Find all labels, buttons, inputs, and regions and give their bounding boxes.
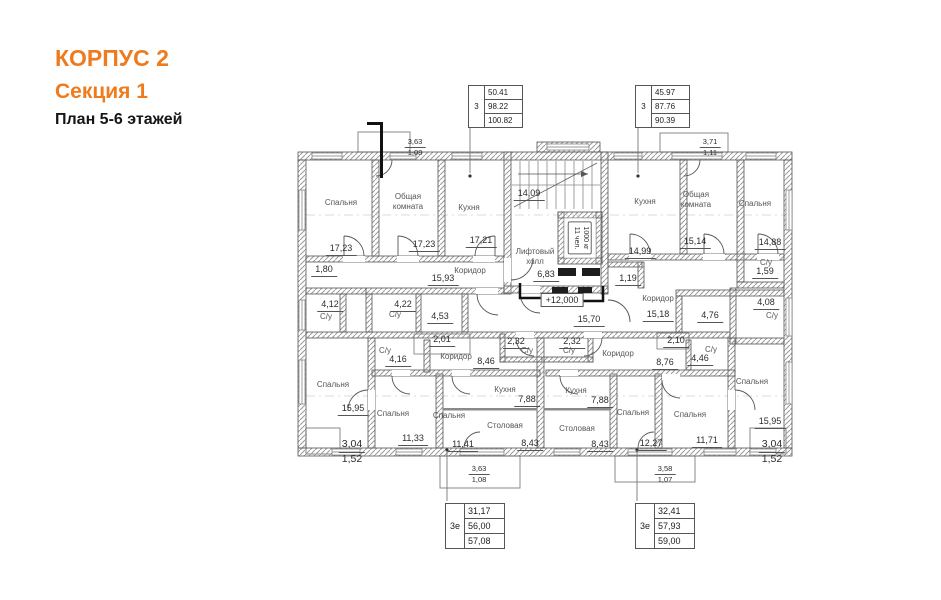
room-area-kuhnya-tl: 17,21 — [466, 236, 497, 248]
apartment-type: 3е — [446, 504, 465, 548]
level-mark: +12,000 — [541, 293, 584, 307]
room-area-koridor-846: 8,46 — [473, 357, 499, 369]
room-area-koridor-1518: 15,18 — [643, 310, 674, 322]
room-name-spalnya-bl3: Спальня — [433, 411, 465, 421]
room-name-koridor-846: Коридор — [440, 352, 472, 362]
balcony-area-bottom: 1,11 — [700, 148, 721, 158]
room-area-koridor-876: 8,76 — [652, 358, 678, 370]
room-name-koridor-1518: Коридор — [642, 294, 674, 304]
apartment-living-area: 31,17 — [465, 504, 504, 519]
room-area-stair: 14,09 — [514, 189, 545, 201]
apartment-table-bottom-right: 3е 32,41 57,93 59,00 — [635, 503, 695, 549]
room-name-spalnya-bl1: Спальня — [317, 380, 349, 390]
room-area-koridor-tl: 15,93 — [428, 274, 459, 286]
room-name-kuhnya-tr: Кухня — [634, 197, 655, 207]
room-area-obshaya-tl: 17,23 — [409, 240, 440, 252]
room-area-su-232-r: 2,32 — [559, 337, 585, 349]
room-name-stolovaya-bl: Столовая — [487, 421, 523, 431]
room-name-su-408: С/у — [766, 311, 778, 321]
apartment-table-top-right: 3 45.97 87.76 90.39 — [635, 85, 690, 128]
room-area-spalnya-tl: 17,23 — [326, 244, 357, 256]
apartment-type: 3 — [469, 86, 485, 127]
room-area-su-412: 4,12 — [317, 300, 343, 312]
balcony-area-bottom-center-left: 3,63 1,08 — [469, 464, 490, 485]
room-name-kuhnya-tl: Кухня — [458, 203, 479, 213]
room-area-kuhnya-bl: 7,88 — [514, 395, 540, 407]
room-area-453: 4,53 — [427, 312, 453, 324]
room-area-stolovaya-br: 8,43 — [587, 440, 613, 452]
apartment-area: 87.76 — [652, 100, 689, 114]
apartment-living-area: 32,41 — [655, 504, 694, 519]
balcony-area-top: 3,04 — [759, 438, 785, 453]
room-name-kuhnya-bl: Кухня — [494, 385, 515, 395]
floor-plan-page: КОРПУС 2 Секция 1 План 5-6 этажей — [0, 0, 941, 600]
room-area-spalnya-bl1: 15,95 — [338, 404, 369, 416]
room-area-su-232-l: 2,32 — [503, 337, 529, 349]
apartment-area: 57,93 — [655, 519, 694, 534]
balcony-area-bottom: 1,07 — [655, 475, 676, 485]
elevator-capacity-label: 1000 кг 11 чел. — [568, 221, 592, 254]
balcony-area-bottom-left-corner: 3,04 1,52 — [339, 438, 365, 466]
room-name-kuhnya-br: Кухня — [565, 386, 586, 396]
room-area-201: 2,01 — [429, 335, 455, 347]
stairs — [512, 161, 600, 209]
apartment-area: 98.22 — [485, 100, 522, 114]
balcony-area-bottom: 1,52 — [759, 453, 785, 467]
room-name-koridor-tl: Коридор — [454, 266, 486, 276]
apartment-living-area: 50.41 — [485, 86, 522, 100]
apartment-type: 3е — [636, 504, 655, 548]
apartment-total-area: 59,00 — [655, 534, 694, 548]
balcony-area-bottom: 1,52 — [339, 453, 365, 467]
apartment-area: 56,00 — [465, 519, 504, 534]
room-name-spalnya-tl: Спальня — [325, 198, 357, 208]
room-name-spalnya-br2: Спальня — [674, 410, 706, 420]
room-area-kuhnya-br: 7,88 — [587, 396, 613, 408]
room-name-spalnya-br1: Спальня — [617, 408, 649, 418]
room-name-koridor-876: Коридор — [602, 349, 634, 359]
room-area-su-159: 1,59 — [752, 267, 778, 279]
room-name-obshaya-tl: Общая комната — [383, 192, 433, 211]
apartment-table-bottom-left: 3е 31,17 56,00 57,08 — [445, 503, 505, 549]
room-area-spalnya-br3: 15,95 — [755, 417, 786, 429]
room-name-lift-hall: Лифтовый холл — [507, 247, 563, 266]
apartment-type: 3 — [636, 86, 652, 127]
room-area-spalnya-bl2: 11,33 — [398, 434, 428, 446]
room-area-kuhnya-tr: 14,99 — [625, 247, 656, 259]
room-area-210: 2,10 — [663, 336, 689, 348]
room-area-spalnya-br2: 11,71 — [692, 436, 722, 448]
balcony-area-top-right: 3,71 1,11 — [700, 137, 721, 158]
balcony-area-bottom-center-right: 3,58 1,07 — [655, 464, 676, 485]
room-area-119: 1,19 — [615, 274, 641, 286]
balcony-area-top: 3,71 — [700, 137, 721, 148]
room-area-spalnya-bl3: 11,41 — [448, 440, 478, 452]
apartment-total-area: 57,08 — [465, 534, 504, 548]
room-area-476: 4,76 — [697, 311, 723, 323]
room-area-spalnya-br1: 12,27 — [636, 439, 667, 451]
room-area-su-408: 4,08 — [753, 298, 779, 310]
balcony-area-bottom-right-corner: 3,04 1,52 — [759, 438, 785, 466]
room-area-su-422: 4,22 — [390, 300, 416, 312]
room-area-stolovaya-bl: 8,43 — [517, 439, 543, 451]
balcony-area-top: 3,63 — [405, 137, 426, 148]
room-name-stolovaya-br: Столовая — [559, 424, 595, 434]
room-name-spalnya-tr: Спальня — [739, 199, 771, 209]
balcony-area-top: 3,58 — [655, 464, 676, 475]
balcony-area-top: 3,63 — [469, 464, 490, 475]
room-area-lift-hall: 6,83 — [533, 270, 559, 282]
room-area-corr-1570: 15,70 — [574, 315, 605, 327]
room-name-obshaya-tr: Общая комната — [671, 190, 721, 209]
balcony-area-bottom: 1,08 — [469, 475, 490, 485]
room-name-spalnya-br3: Спальня — [736, 377, 768, 387]
balcony-area-top: 3,04 — [339, 438, 365, 453]
balcony-area-bottom: 1,08 — [405, 148, 426, 158]
room-area-su-446: 4,46 — [687, 354, 713, 366]
apartment-table-top-left: 3 50.41 98.22 100.82 — [468, 85, 523, 128]
room-name-su-412: С/у — [320, 312, 332, 322]
apartment-total-area: 100.82 — [485, 114, 522, 127]
room-area-su-416: 4,16 — [385, 355, 411, 367]
elevator-capacity: 1000 кг — [580, 226, 589, 249]
elevator-persons: 11 чел. — [571, 226, 580, 249]
apartment-total-area: 90.39 — [652, 114, 689, 127]
room-area-spalnya-tr: 14,88 — [755, 238, 786, 250]
room-name-spalnya-bl2: Спальня — [377, 409, 409, 419]
balcony-area-top-left: 3,63 1,08 — [405, 137, 426, 158]
room-area-su-180: 1,80 — [311, 265, 337, 277]
apartment-living-area: 45.97 — [652, 86, 689, 100]
room-area-obshaya-tr: 15,14 — [680, 237, 711, 249]
